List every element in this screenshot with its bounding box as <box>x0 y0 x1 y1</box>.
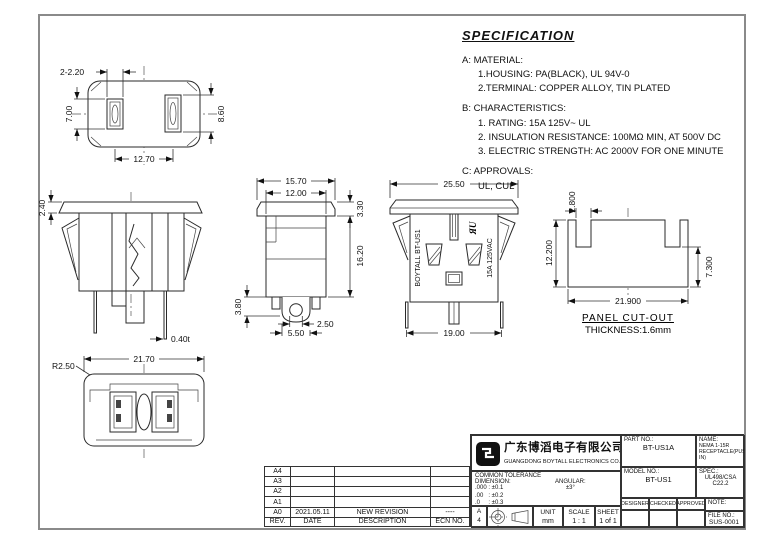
spec-a-heading: MATERIAL: <box>474 55 523 66</box>
company-cell: 广东博滔电子有限公司 GUANGDONG BOYTALL ELECTRONICS… <box>471 435 621 471</box>
dim-left-slot-height: 7.00 <box>64 105 74 122</box>
rev-header: REV. <box>264 517 290 527</box>
dim-bottom-width: 21.70 <box>133 354 155 364</box>
tolerance-row-1: .000 : ±0.1 <box>475 485 555 493</box>
panel-cutout-thickness: THICKNESS:1.6mm <box>585 325 671 336</box>
spec-b-line1: 1. RATING: 15A 125V~ UL <box>462 117 750 131</box>
date-cell <box>290 466 334 476</box>
ul-recognized-icon: ЯU <box>468 221 478 235</box>
view-front-face: 2-2.20 7.00 8.60 12.70 <box>58 56 268 178</box>
tolerance-row-2: .00 : ±0.2 <box>475 493 555 501</box>
spec-b-line2: 2. INSULATION RESISTANCE: 100MΩ MIN, AT … <box>462 131 750 145</box>
dim-total-height: 12.200 <box>544 240 554 266</box>
spec-b-label: B: <box>462 103 471 114</box>
dim-body-height: 16.20 <box>355 245 365 267</box>
model-no-cell: MODEL NO.: BT-US1 <box>621 467 696 498</box>
angular-value: ±3° <box>555 485 586 491</box>
tolerance-cell: COMMON TOLERANCE DIMENSION: .000 : ±0.1 … <box>471 471 621 506</box>
desc-cell <box>334 476 430 486</box>
desc-cell <box>334 496 430 506</box>
side-outline <box>257 202 335 322</box>
name-label: NAME: <box>697 436 744 443</box>
spec-b-heading: CHARACTERISTICS: <box>474 103 566 114</box>
spec-no-label: SPEC.: <box>697 468 744 475</box>
paper-size-cell: A 4 <box>471 506 487 528</box>
note-cell: NOTE: <box>705 498 745 511</box>
model-no-label: MODEL NO.: <box>622 468 695 475</box>
dim-flange-height: 3.30 <box>355 200 365 217</box>
dim-body-width: 12.00 <box>285 188 307 198</box>
spec-section-c: C: APPROVALS: <box>462 165 750 179</box>
checked-signature-cell <box>649 510 677 528</box>
name-value-line2: RECEPTACLE(PUSH-IN) <box>697 449 744 461</box>
marking-model-text: BOYTALL BT-US1 <box>415 229 422 286</box>
approved-header: APPROVED <box>677 498 705 510</box>
spec-a-line1: 1.HOUSING: PA(BLACK), UL 94V-0 <box>462 68 750 82</box>
scale-label: SCALE <box>568 509 589 516</box>
ecn-cell <box>430 496 470 506</box>
ecn-cell <box>430 466 470 476</box>
dim-foot-height: 3.80 <box>233 298 243 315</box>
approved-signature-cell <box>677 510 705 528</box>
view-bottom: 21.70 R2.50 <box>46 344 224 466</box>
dim-flange-thickness: 2.40 <box>37 199 47 216</box>
unit-cell: UNIT mm <box>533 506 563 528</box>
third-angle-projection-icon <box>488 507 532 527</box>
model-no-value: BT-US1 <box>622 475 695 484</box>
rev-cell: A1 <box>264 496 290 506</box>
designer-header: DESIGNER <box>621 498 649 510</box>
spec-no-cell: SPEC.: UL498/CSA C22.2 <box>696 467 745 498</box>
specification-title: SPECIFICATION <box>462 26 750 46</box>
designer-signature-cell <box>621 510 649 528</box>
table-row: A4 <box>264 466 470 476</box>
section-outline <box>59 192 202 339</box>
dim-corner-radius: R2.50 <box>52 361 75 371</box>
scale-cell: SCALE 1 : 1 <box>563 506 595 528</box>
rear-outline <box>390 200 518 328</box>
drawing-sheet: 2-2.20 7.00 8.60 12.70 <box>0 0 770 544</box>
sheet-cell: SHEET 1 of 1 <box>595 506 621 528</box>
view-panel-cutout: 2.800 12.200 7.300 21.900 PANEL CUT-OUT … <box>543 178 721 338</box>
view-cross-section: 2.40 0.40t <box>34 186 229 346</box>
dim-tab-width: 5.50 <box>288 328 305 338</box>
dim-terminal-thickness: 0.40t <box>171 334 191 344</box>
dim-notch-width: 2.800 <box>567 191 577 213</box>
desc-cell <box>334 466 430 476</box>
dim-right-slot-height: 8.60 <box>216 105 226 122</box>
front-face-outline <box>88 81 200 147</box>
rev-cell: A4 <box>264 466 290 476</box>
part-no-value: BT-US1A <box>622 443 695 452</box>
spec-section-b: B: CHARACTERISTICS: <box>462 102 750 116</box>
paper-letter: A <box>472 507 486 516</box>
desc-cell <box>334 486 430 496</box>
unit-value: mm <box>542 518 554 525</box>
table-header-row: REV. DATE DESCRIPTION ECN NO. <box>264 517 470 527</box>
desc-cell: NEW REVISION <box>334 507 430 517</box>
dim-slot-pitch: 12.70 <box>133 154 155 164</box>
revision-table: A4 A3 A2 A1 A0 2021.05.11 NEW REVISION <box>264 466 470 527</box>
view-rear: BOYTALL BT-US1 15A 125VAC ЯU 25.50 19.00 <box>380 170 528 340</box>
view-side-elevation: 15.70 12.00 3.30 16.20 3.80 2.50 5.50 <box>228 164 366 341</box>
dim-flange-width: 15.70 <box>285 176 307 186</box>
checked-header: CHECKED <box>649 498 677 510</box>
unit-label: UNIT <box>540 509 555 516</box>
sheet-value: 1 of 1 <box>599 518 617 525</box>
dim-hole-diameter: 2.50 <box>317 319 334 329</box>
dim-pin-pitch: 19.00 <box>443 328 465 338</box>
date-cell: 2021.05.11 <box>290 507 334 517</box>
spec-c-heading: APPROVALS: <box>474 166 534 177</box>
dim-cutout-width: 21.900 <box>615 296 641 306</box>
date-cell <box>290 496 334 506</box>
file-no-value: SUS-0001 <box>706 519 744 526</box>
cutout-outline <box>568 220 688 287</box>
spec-a-label: A: <box>462 55 471 66</box>
ecn-cell <box>430 476 470 486</box>
spec-c-label: C: <box>462 166 472 177</box>
scale-value: 1 : 1 <box>572 518 586 525</box>
company-logo <box>475 441 501 467</box>
rev-cell: A2 <box>264 486 290 496</box>
spec-c-line1: UL, CUL <box>462 180 750 194</box>
ecn-header: ECN NO. <box>430 517 470 527</box>
table-row: A2 <box>264 486 470 496</box>
file-no-label: FILE NO.: <box>706 512 744 519</box>
file-no-cell: FILE NO.: SUS-0001 <box>705 511 745 528</box>
specification-block: SPECIFICATION A: MATERIAL: 1.HOUSING: PA… <box>462 26 750 194</box>
part-no-cell: PART NO.: BT-US1A <box>621 435 696 467</box>
ecn-cell <box>430 486 470 496</box>
sheet-label: SHEET <box>597 509 619 516</box>
bottom-outline <box>84 374 204 446</box>
ecn-cell: ---- <box>430 507 470 517</box>
rev-cell: A0 <box>264 507 290 517</box>
name-cell: NAME: NEMA 1-15R RECEPTACLE(PUSH-IN) <box>696 435 745 467</box>
spec-section-a: A: MATERIAL: <box>462 54 750 68</box>
spec-no-value: UL498/CSA C22.2 <box>697 475 744 487</box>
dim-side-height: 7.300 <box>704 256 714 278</box>
part-no-label: PART NO.: <box>622 436 695 443</box>
rev-cell: A3 <box>264 476 290 486</box>
note-label: NOTE: <box>706 499 744 506</box>
marking-rating-text: 15A 125VAC <box>487 238 494 278</box>
desc-header: DESCRIPTION <box>334 517 430 527</box>
date-cell <box>290 486 334 496</box>
table-row: A3 <box>264 476 470 486</box>
spec-a-line2: 2.TERMINAL: COPPER ALLOY, TIN PLATED <box>462 82 750 96</box>
company-name-en: GUANGDONG BOYTALL ELECTRONICS CO.,LTD <box>504 459 621 465</box>
dim-slot-width: 2-2.20 <box>60 67 84 77</box>
company-name-cn: 广东博滔电子有限公司 <box>504 439 621 455</box>
date-cell <box>290 476 334 486</box>
bottom-dimensions: 21.70 R2.50 <box>52 353 204 375</box>
table-row: A1 <box>264 496 470 506</box>
table-row: A0 2021.05.11 NEW REVISION ---- <box>264 507 470 517</box>
paper-number: 4 <box>472 516 486 525</box>
date-header: DATE <box>290 517 334 527</box>
spec-b-line3: 3. ELECTRIC STRENGTH: AC 2000V FOR ONE M… <box>462 145 750 159</box>
title-block: 广东博滔电子有限公司 GUANGDONG BOYTALL ELECTRONICS… <box>470 434 744 527</box>
panel-cutout-title: PANEL CUT-OUT <box>582 313 674 324</box>
projection-symbol-cell <box>487 506 533 528</box>
